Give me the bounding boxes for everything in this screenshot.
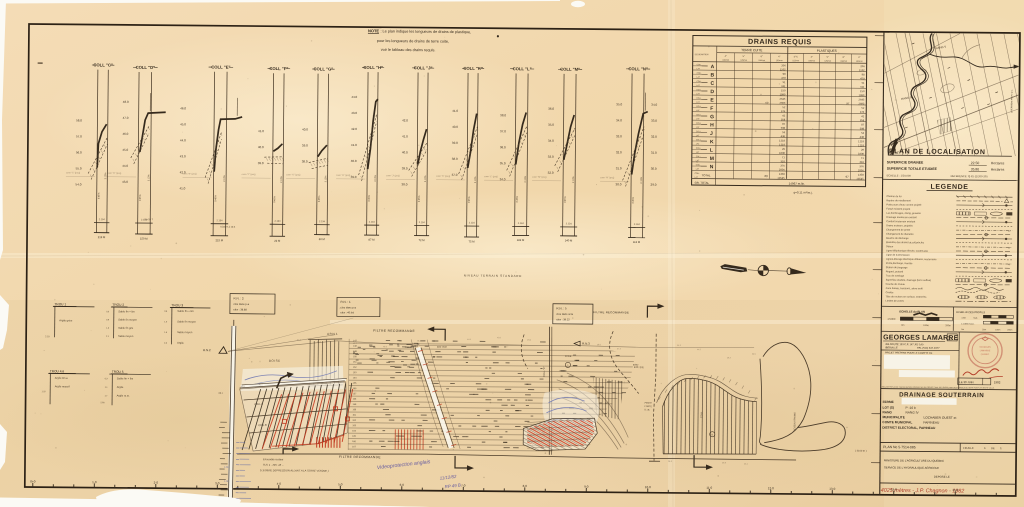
- svg-text:58.0: 58.0: [417, 341, 421, 343]
- svg-text:598: 598: [860, 127, 865, 131]
- svg-text:6·0: 6·0: [400, 483, 405, 487]
- svg-text:3·0: 3·0: [215, 481, 220, 485]
- svg-text:49.6: 49.6: [527, 340, 531, 342]
- svg-text:QUEBEC: QUEBEC: [981, 354, 990, 356]
- svg-text:479: 479: [860, 76, 865, 80]
- svg-text:conn “J” (proj): conn “J” (proj): [386, 174, 400, 177]
- svg-text:LOCHABER OUEST et: LOCHABER OUEST et: [923, 416, 956, 420]
- svg-text:1808: 1808: [779, 151, 785, 155]
- svg-text:Changement de pente: Changement de pente: [886, 228, 911, 231]
- svg-text:PLASTIQUES: PLASTIQUES: [817, 49, 837, 53]
- svg-text:0m: 0m: [961, 329, 964, 331]
- svg-text:22 M: 22 M: [274, 239, 281, 243]
- svg-text:COLL: COLL: [696, 81, 701, 83]
- svg-text:42.0: 42.0: [402, 118, 408, 122]
- svg-text:5": 5": [743, 55, 745, 58]
- svg-text:Sable fin moyen: Sable fin moyen: [177, 319, 196, 323]
- svg-text:611: 611: [860, 85, 865, 89]
- svg-text:R.N. : 5: R.N. : 5: [556, 306, 567, 310]
- svg-text:COLL: COLL: [697, 64, 702, 66]
- svg-text:TROU 5: TROU 5: [112, 370, 124, 374]
- svg-text:318: 318: [780, 159, 785, 163]
- svg-text:376: 376: [780, 164, 785, 168]
- svg-text:2.134: 2.134: [634, 223, 641, 226]
- svg-text:42.0: 42.0: [497, 337, 501, 339]
- svg-text:2.134: 2.134: [419, 221, 426, 224]
- svg-text:2.134: 2.134: [216, 219, 223, 222]
- svg-text:100m: 100m: [995, 329, 1000, 331]
- svg-text:37.5: 37.5: [297, 339, 301, 341]
- svg-text:125mm: 125mm: [824, 61, 831, 63]
- svg-text:ROSEAU RAVINE: ROSEAU RAVINE: [793, 412, 796, 431]
- svg-text:0.45%: 0.45%: [140, 195, 142, 202]
- svg-text:2·0: 2·0: [154, 481, 159, 485]
- svg-text:Chemin de fer: Chemin de fer: [886, 195, 902, 198]
- svg-text:: Le plan indique les longueur: : Le plan indique les longueurs de drain…: [380, 29, 471, 34]
- svg-text:Drains moteurs, projetés: Drains moteurs, projetés: [886, 224, 913, 227]
- svg-text:0.45%: 0.45%: [369, 195, 371, 202]
- svg-text:COLL: COLL: [696, 148, 701, 150]
- svg-text:TERRE CUITE: TERRE CUITE: [741, 48, 762, 52]
- svg-text:34.0: 34.0: [651, 103, 657, 107]
- svg-text:44.0: 44.0: [122, 164, 128, 168]
- svg-text:0.45%: 0.45%: [419, 196, 421, 203]
- svg-text:219 M: 219 M: [98, 235, 106, 239]
- svg-text:40.0: 40.0: [302, 127, 308, 131]
- svg-text:34.0: 34.0: [616, 118, 622, 122]
- svg-text:7·0: 7·0: [461, 483, 466, 487]
- svg-text:TEL.(514) 347-2377: TEL.(514) 347-2377: [917, 347, 940, 350]
- svg-text:56.0: 56.0: [76, 150, 82, 154]
- svg-text:COLL “C”: COLL “C”: [543, 366, 546, 376]
- svg-text:376: 376: [781, 109, 786, 113]
- svg-text:GEORGES: GEORGES: [980, 347, 992, 349]
- svg-text:358: 358: [781, 117, 786, 121]
- svg-text:182 M: 182 M: [517, 238, 525, 242]
- svg-text:N: N: [710, 164, 714, 170]
- svg-text:MINISTERE DE L'AGRICULTURE: MINISTERE DE L'AGRICULTURE DU QUEBEC: [884, 458, 944, 463]
- svg-text:COLL "D": COLL "D": [136, 65, 156, 70]
- svg-text:2.13%: 2.13%: [375, 175, 377, 182]
- svg-text:140 M: 140 M: [565, 238, 573, 242]
- svg-text:Vert.: Vert.: [973, 317, 978, 320]
- svg-text:40.0: 40.0: [452, 125, 458, 129]
- svg-text:1982: 1982: [994, 380, 1001, 384]
- svg-text:Lignes-élevage électrique clôt: Lignes-élevage électrique clôtures, sout…: [886, 258, 937, 261]
- svg-text:2.134: 2.134: [518, 222, 525, 225]
- svg-text:6": 6": [843, 56, 845, 59]
- svg-text:PENTE: PENTE: [645, 403, 653, 405]
- svg-text:R.N.3: R.N.3: [582, 342, 590, 346]
- svg-text:125mm: 125mm: [740, 60, 747, 62]
- svg-text:C: C: [710, 81, 714, 87]
- svg-text:33.0: 33.0: [651, 119, 657, 123]
- svg-text:35.0: 35.0: [500, 161, 506, 165]
- svg-text:2.13%: 2.13%: [224, 175, 226, 182]
- svg-text:38.0: 38.0: [302, 159, 308, 163]
- svg-text:100mm: 100mm: [856, 61, 863, 63]
- svg-text:4"½: 4"½: [794, 54, 798, 58]
- svg-text:1358: 1358: [779, 172, 785, 176]
- svg-text:41.0: 41.0: [402, 134, 408, 138]
- svg-text:2.13%: 2.13%: [573, 176, 575, 183]
- svg-text:22.50: 22.50: [971, 161, 980, 165]
- svg-text:40: 40: [1008, 264, 1010, 266]
- svg-text:58.0: 58.0: [76, 118, 82, 122]
- svg-text:Argile lim a: Argile lim a: [55, 376, 68, 380]
- svg-text:0.45%: 0.45%: [215, 195, 217, 202]
- svg-text:4": 4": [858, 56, 860, 59]
- svg-text:46.0: 46.0: [180, 106, 186, 110]
- svg-text:75 M: 75 M: [469, 240, 476, 244]
- svg-text:2693: 2693: [780, 101, 786, 105]
- svg-text:ECHELLE : 1/20,000: ECHELLE : 1/20,000: [887, 173, 912, 177]
- svg-text:611: 611: [781, 84, 786, 88]
- svg-text:206: 206: [860, 64, 865, 68]
- svg-text:100mm: 100mm: [722, 60, 729, 62]
- svg-text:conn “G” (proj): conn “G” (proj): [286, 173, 301, 176]
- svg-text:COLL "L": COLL "L": [513, 66, 532, 71]
- svg-text:43.0: 43.0: [122, 180, 128, 184]
- svg-text:50m: 50m: [982, 329, 986, 331]
- svg-text:41.0: 41.0: [179, 186, 185, 190]
- svg-text:33.0: 33.0: [548, 155, 554, 159]
- svg-text:R.N. : 1: R.N. : 1: [340, 300, 351, 304]
- svg-text:2693: 2693: [859, 101, 865, 105]
- svg-text:COLL: COLL: [696, 156, 701, 158]
- svg-text:60: 60: [765, 174, 769, 178]
- svg-text:37.3: 37.3: [617, 348, 621, 350]
- svg-text:MUNICIPALITE: MUNICIPALITE: [882, 415, 904, 419]
- svg-text:49.3: 49.3: [727, 357, 731, 359]
- svg-text:Regard, puisard: Regard, puisard: [886, 270, 904, 273]
- svg-text:COLL "J": COLL "J": [414, 65, 433, 70]
- svg-text:Conduit souterrain existant: Conduit souterrain existant: [886, 220, 915, 223]
- svg-text:2.13%: 2.13%: [475, 177, 477, 184]
- svg-text:clou dans p-a: clou dans p-a: [233, 302, 249, 306]
- svg-text:150mm: 150mm: [840, 61, 847, 63]
- svg-text:Argile: Argile: [117, 385, 124, 389]
- svg-text:NIVEAU TERRAIN STANDARD: NIVEAU TERRAIN STANDARD: [464, 273, 522, 278]
- svg-text:14·0: 14·0: [891, 487, 897, 491]
- svg-text:2.134: 2.134: [369, 221, 376, 224]
- svg-text:206: 206: [781, 63, 786, 67]
- svg-text:29.0: 29.0: [651, 183, 657, 187]
- svg-text:Sable moyen: Sable moyen: [118, 334, 134, 338]
- svg-text:P -16 b: P -16 b: [906, 406, 916, 410]
- svg-text:13545: 13545: [856, 177, 864, 181]
- svg-text:DISTRICT ELECTORAL, PAPINEAU: DISTRICT ELECTORAL, PAPINEAU: [882, 426, 936, 430]
- svg-text:Tête de rochers en surface, en: Tête de rochers en surface, enterrées: [886, 295, 928, 298]
- svg-text:Sable fin moyen: Sable fin moyen: [118, 318, 137, 322]
- svg-text:FORTE: FORTE: [645, 406, 653, 408]
- svg-text:1:1000 Horiz.: 1:1000 Horiz.: [961, 323, 974, 326]
- svg-text:TROU 1: TROU 1: [54, 302, 66, 306]
- svg-text:31.0: 31.0: [616, 166, 622, 170]
- svg-text:Hectares: Hectares: [991, 161, 1005, 165]
- svg-text:RANG: RANG: [882, 410, 892, 414]
- svg-text:0.45%: 0.45%: [517, 196, 519, 203]
- svg-text:COLL: COLL: [696, 114, 701, 116]
- svg-text:38.0: 38.0: [500, 113, 506, 117]
- svg-text:1358: 1358: [858, 173, 864, 177]
- svg-text:100mm: 100mm: [808, 60, 815, 62]
- svg-text:DRAINS REQUIS: DRAINS REQUIS: [748, 37, 812, 47]
- svg-text:conn “F” (proj): conn “F” (proj): [242, 173, 256, 176]
- svg-text:0.45%: 0.45%: [319, 196, 321, 203]
- svg-text:57.0: 57.0: [76, 134, 82, 138]
- svg-text:COLL A: COLL A: [254, 403, 263, 407]
- svg-text:Limites de zones: Limites de zones: [885, 300, 904, 303]
- svg-text:2.134: 2.134: [319, 220, 326, 223]
- svg-text:55.0: 55.0: [76, 166, 82, 170]
- svg-text:SUPERFICIE TOTALE ETUDIEE: SUPERFICIE TOTALE ETUDIEE: [887, 167, 938, 171]
- svg-text:COLL "H": COLL "H": [363, 65, 383, 70]
- svg-text:COLL: COLL: [696, 131, 701, 133]
- svg-text:6": 6": [761, 55, 763, 58]
- svg-text:10·0: 10·0: [645, 485, 651, 489]
- svg-text:COLL "E": COLL "E": [211, 64, 230, 69]
- svg-text:41.0: 41.0: [351, 143, 357, 147]
- svg-text:AGR: AGR: [947, 338, 952, 341]
- svg-text:11·0: 11·0: [706, 486, 712, 490]
- svg-text:ING: ING: [947, 336, 951, 338]
- svg-text:FERME: FERME: [883, 400, 894, 404]
- svg-text:LAMARRE: LAMARRE: [980, 349, 991, 352]
- svg-text:LOT (S): LOT (S): [883, 406, 895, 410]
- svg-text:COLL: COLL: [696, 98, 701, 100]
- svg-text:438: 438: [860, 135, 865, 139]
- svg-text:COLL: COLL: [697, 73, 702, 75]
- svg-text:R.N.2: R.N.2: [203, 348, 211, 352]
- svg-text:2.13%: 2.13%: [525, 176, 527, 183]
- svg-text:44.0: 44.0: [351, 95, 357, 99]
- svg-text:NOTE: NOTE: [368, 28, 379, 33]
- svg-text:Argile m.m.: Argile m.m.: [117, 394, 130, 398]
- svg-text:318: 318: [859, 160, 864, 164]
- svg-text:39.0: 39.0: [402, 166, 408, 170]
- svg-text:clou dans ocre: clou dans ocre: [556, 312, 573, 316]
- svg-text:40.0: 40.0: [402, 150, 408, 154]
- svg-text:112 M: 112 M: [633, 240, 641, 244]
- svg-text:41.0: 41.0: [258, 129, 264, 133]
- svg-text:0.45%: 0.45%: [565, 196, 567, 203]
- svg-text:60/62: 60/62: [633, 365, 639, 367]
- svg-text:40: 40: [1008, 231, 1010, 233]
- svg-text:TROU 4,6: TROU 4,6: [50, 369, 65, 373]
- svg-text:Sable fin + lim: Sable fin + lim: [177, 309, 193, 313]
- svg-text:Coulée: Coulée: [886, 291, 894, 294]
- svg-text:150: 150: [781, 88, 786, 92]
- svg-text:2645: 2645: [780, 97, 786, 101]
- svg-text:13545: 13545: [777, 176, 785, 180]
- svg-text:1102: 1102: [780, 67, 786, 71]
- svg-text:150 M: 150 M: [140, 237, 148, 241]
- svg-text:F: F: [710, 106, 713, 112]
- svg-text:5": 5": [827, 56, 829, 59]
- svg-text:12·0: 12·0: [768, 486, 774, 490]
- svg-text:clou dans p-a: clou dans p-a: [340, 305, 356, 309]
- svg-text:COLL: COLL: [695, 173, 700, 175]
- svg-text:Station de jaugeage: Station de jaugeage: [886, 266, 908, 269]
- svg-text:COLL "K": COLL "K": [463, 66, 483, 71]
- svg-text:A: A: [711, 64, 715, 70]
- svg-text:150mm: 150mm: [758, 60, 765, 62]
- svg-text:G: G: [710, 114, 714, 120]
- svg-text:47.0: 47.0: [123, 116, 129, 120]
- svg-text:1218: 1218: [858, 139, 864, 143]
- svg-text:4": 4": [811, 56, 813, 59]
- svg-text:37.0: 37.0: [500, 129, 506, 133]
- svg-text:38.0: 38.0: [452, 157, 458, 161]
- svg-text:FILTRE RECOMMANDE: FILTRE RECOMMANDE: [373, 329, 415, 333]
- svg-text:46.6: 46.6: [383, 346, 387, 348]
- svg-text:32.0: 32.0: [651, 135, 657, 139]
- svg-text:Ensemble restant: Ensemble restant: [263, 457, 283, 461]
- svg-text:TROU 2: TROU 2: [112, 303, 124, 307]
- svg-text:0.45%: 0.45%: [99, 193, 101, 200]
- svg-text:2.13%: 2.13%: [641, 177, 643, 184]
- svg-text:35.0: 35.0: [616, 102, 622, 106]
- svg-text:0.45%: 0.45%: [633, 197, 635, 204]
- svg-text:52.5: 52.5: [752, 354, 756, 356]
- svg-text:2.13%: 2.13%: [148, 175, 150, 182]
- svg-text:115mm: 115mm: [792, 60, 799, 62]
- svg-text:conn “C” (proj): conn “C” (proj): [66, 171, 80, 174]
- svg-text:ECHELLE DES PROFILS: ECHELLE DES PROFILS: [956, 311, 985, 314]
- svg-text:1218: 1218: [779, 142, 785, 146]
- svg-text:voir le tableau des drains req: voir le tableau des drains requis.: [381, 48, 436, 52]
- svg-text:conn “N” (proj): conn “N” (proj): [600, 176, 614, 179]
- svg-text:IBERVILLE: IBERVILLE: [885, 346, 898, 349]
- svg-text:43.7: 43.7: [353, 343, 357, 345]
- svg-text:15·0: 15·0: [952, 488, 958, 492]
- svg-text:1·0: 1·0: [92, 480, 97, 484]
- svg-text:376: 376: [859, 164, 864, 168]
- svg-text:COLL: COLL: [696, 164, 701, 166]
- svg-text:COLL "M": COLL "M": [560, 67, 580, 72]
- svg-text:35.80: 35.80: [971, 167, 980, 171]
- svg-text:Sable fin + lim: Sable fin + lim: [118, 309, 134, 313]
- svg-text:PAPINEAU: PAPINEAU: [923, 421, 940, 425]
- svg-text:150: 150: [860, 89, 865, 93]
- svg-text:Argile grise: Argile grise: [59, 318, 73, 322]
- svg-text:COLL "F": COLL "F": [269, 66, 288, 71]
- svg-text:DESIGNATION: DESIGNATION: [695, 53, 709, 56]
- svg-text:598: 598: [781, 126, 786, 130]
- svg-text:Sable fin + lim: Sable fin + lim: [117, 376, 133, 380]
- svg-text:Ligne de transmission: Ligne de transmission: [886, 254, 910, 257]
- svg-text:32.0: 32.0: [616, 150, 622, 154]
- svg-text:200m: 200m: [1007, 329, 1012, 331]
- svg-text:COLL B: COLL B: [258, 424, 267, 428]
- svg-text:R.N. : 2: R.N. : 2: [233, 296, 244, 300]
- svg-text:200m: 200m: [945, 325, 951, 327]
- svg-text:37.0: 37.0: [452, 173, 458, 177]
- svg-text:2006: 2006: [779, 168, 785, 172]
- svg-text:39.0: 39.0: [302, 143, 308, 147]
- svg-text:42.0: 42.0: [351, 127, 357, 131]
- svg-text:elev : 40.64: elev : 40.64: [340, 310, 354, 314]
- svg-text:215 M: 215 M: [216, 238, 224, 242]
- svg-text:Argile: Argile: [177, 341, 184, 345]
- svg-text:J: J: [710, 131, 713, 137]
- svg-text:44.0: 44.0: [180, 138, 186, 142]
- svg-text:31.6: 31.6: [317, 342, 321, 344]
- svg-text:conn “E” (proj): conn “E” (proj): [183, 172, 197, 175]
- svg-text:2.13%: 2.13%: [425, 176, 427, 183]
- svg-text:54.3: 54.3: [677, 345, 681, 347]
- svg-text:2006: 2006: [858, 168, 864, 172]
- svg-text:A R.N. 1: A R.N. 1: [327, 332, 338, 336]
- svg-text:LE 30 JUIN: LE 30 JUIN: [959, 380, 973, 384]
- svg-text:D.I.B.: D.I.B.: [644, 409, 650, 411]
- svg-text:conn “H” (proj): conn “H” (proj): [336, 174, 350, 177]
- svg-text:Puits,cours d'eau current pro: Puits,cours d'eau current projeté: [886, 203, 922, 206]
- svg-text:45.0: 45.0: [180, 122, 186, 126]
- svg-text:8·0: 8·0: [523, 484, 528, 488]
- svg-text:conn “M” (proj): conn “M” (proj): [532, 176, 547, 179]
- svg-text:RANG IV: RANG IV: [905, 411, 919, 415]
- svg-text:COLL: COLL: [696, 89, 701, 91]
- svg-text:1990: 1990: [859, 93, 865, 97]
- svg-text:COLL: COLL: [696, 139, 701, 141]
- svg-text:9·0: 9·0: [584, 485, 589, 489]
- svg-text:58.0: 58.0: [597, 344, 601, 346]
- svg-text:Fossé existant projeté: Fossé existant projeté: [886, 208, 911, 211]
- svg-text:conn “L” (proj): conn “L” (proj): [484, 175, 498, 178]
- svg-text:2.13%: 2.13%: [281, 176, 283, 183]
- svg-text:72 M: 72 M: [419, 238, 426, 242]
- svg-text:H: H: [710, 123, 714, 129]
- svg-text:( LEGERE DEPRESSION ALLANT: ( LEGERE DEPRESSION ALLANT A LA TERRE VO…: [260, 468, 329, 473]
- svg-text:Repère de nivellement: Repère de nivellement: [886, 199, 911, 202]
- svg-text:4·0: 4·0: [277, 482, 282, 486]
- svg-text:43.0: 43.0: [351, 111, 357, 115]
- svg-text:COLL: COLL: [696, 106, 701, 108]
- svg-text:4": 4": [725, 55, 727, 58]
- svg-text:36.0: 36.0: [500, 145, 506, 149]
- svg-text:Ponts,décharge, montée: Ponts,décharge, montée: [886, 262, 913, 265]
- svg-text:( 4100 m ): ( 4100 m ): [855, 450, 867, 453]
- svg-text:Superficie étudiée, drainage (: Superficie étudiée, drainage (terre suff…: [886, 279, 932, 282]
- svg-text:39.0: 39.0: [258, 161, 264, 165]
- svg-text:TOTAL: TOTAL: [702, 173, 711, 177]
- svg-text:41.0: 41.0: [452, 109, 458, 113]
- svg-text:conn “D” (proj): conn “D” (proj): [107, 172, 121, 175]
- svg-text:AJOUT à 10.4: AJOUT à 10.4: [220, 226, 236, 229]
- svg-text:0m: 0m: [901, 325, 904, 327]
- svg-text:Changement de diamètre: Changement de diamètre: [886, 233, 914, 236]
- svg-text:Sable fin gris: Sable fin gris: [118, 326, 134, 330]
- svg-text:32.0: 32.0: [548, 171, 554, 175]
- svg-text:34.0: 34.0: [500, 177, 506, 181]
- svg-text:0+0: 0+0: [30, 480, 35, 484]
- svg-text:97: 97: [845, 175, 849, 179]
- svg-text:TROU 3: TROU 3: [171, 303, 183, 307]
- svg-text:2.134: 2.134: [99, 218, 106, 221]
- svg-text:479: 479: [781, 76, 786, 80]
- svg-text:0.45%: 0.45%: [274, 196, 276, 203]
- svg-text:1:5000: 1:5000: [887, 317, 896, 321]
- svg-text:44.5: 44.5: [467, 339, 471, 341]
- svg-text:FILTRE RECOMMANDE: FILTRE RECOMMANDE: [593, 310, 629, 314]
- svg-text:34.0: 34.0: [548, 139, 554, 143]
- svg-text:35.0: 35.0: [548, 123, 554, 127]
- svg-text:Sable moyen: Sable moyen: [177, 330, 193, 334]
- svg-text:33.0: 33.0: [616, 134, 622, 138]
- svg-text:R.N. 1 - NIV. 18 ...: R.N. 1 - NIV. 18 ...: [263, 463, 284, 467]
